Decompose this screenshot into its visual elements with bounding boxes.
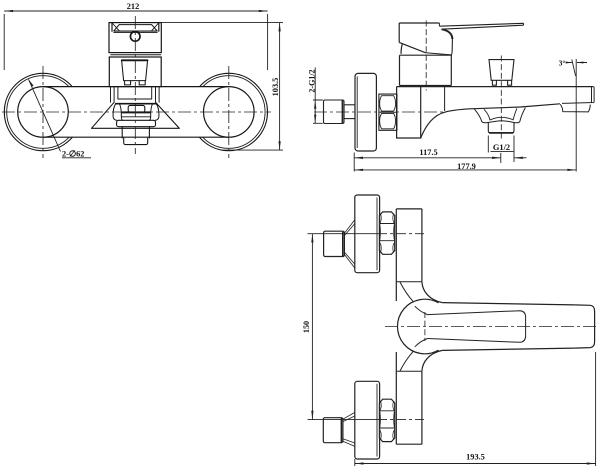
svg-text:193.5: 193.5 [466, 453, 485, 462]
svg-text:150: 150 [302, 321, 311, 333]
svg-text:G1/2: G1/2 [493, 143, 510, 152]
svg-text:212: 212 [127, 2, 139, 11]
svg-text:2-∅62: 2-∅62 [62, 149, 84, 158]
svg-text:117.5: 117.5 [419, 148, 437, 157]
svg-text:2-G1/2: 2-G1/2 [307, 69, 316, 92]
svg-text:177.9: 177.9 [457, 162, 476, 171]
svg-text:103.5: 103.5 [271, 78, 280, 97]
svg-text:3°: 3° [559, 58, 566, 67]
